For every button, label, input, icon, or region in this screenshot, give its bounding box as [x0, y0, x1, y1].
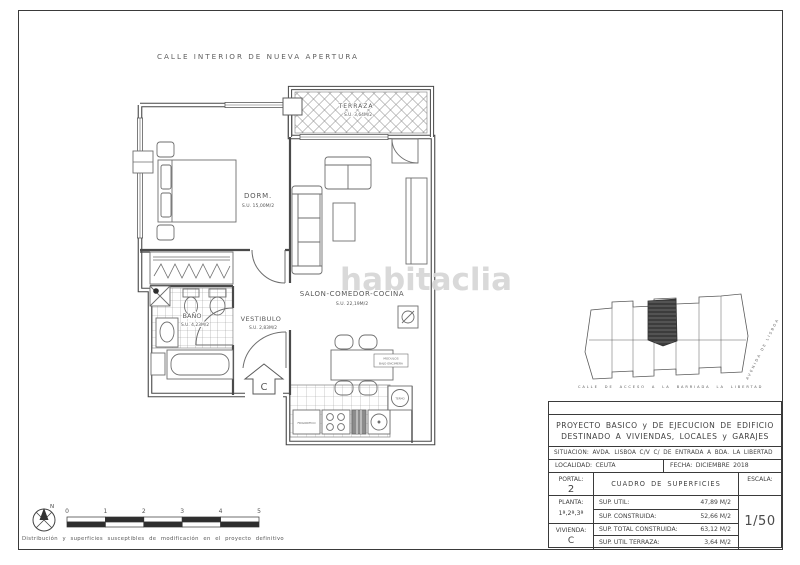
- sup-total-label: SUP. TOTAL CONSTRUIDA:: [599, 524, 678, 535]
- cabinet: [352, 410, 366, 434]
- vivienda-cell: VIVIENDA: C: [549, 524, 594, 549]
- room-label-terraza: TERRAZA: [338, 103, 374, 110]
- sup-construida-row: SUP. CONSTRUIDA: 52,66 M/2: [594, 510, 739, 524]
- north-compass: N: [33, 504, 55, 531]
- portal-value: 2: [549, 484, 593, 496]
- room-area-salon: S.U. 22,19M/2: [336, 301, 368, 307]
- project-title-line1: PROYECTO BASICO y DE EJECUCION DE EDIFIC…: [549, 420, 781, 431]
- vivienda-value: C: [549, 535, 593, 547]
- washbasin: [156, 318, 178, 347]
- terraza-door: [392, 139, 418, 163]
- highlighted-unit: [648, 299, 677, 346]
- localidad-cell: LOCALIDAD: CEUTA: [549, 460, 664, 473]
- project-title: PROYECTO BASICO y DE EJECUCION DE EDIFIC…: [549, 415, 781, 447]
- north-label: N: [50, 504, 54, 510]
- scale-tick: 1: [103, 508, 107, 515]
- nightstand: [157, 225, 174, 240]
- site-street-bottom: CALLE DE ACCESO A LA BARRIADA LA LIBERTA…: [578, 385, 763, 389]
- column-symbol: [398, 306, 418, 328]
- site-plan: CALLE DE ACCESO A LA BARRIADA LA LIBERTA…: [578, 294, 780, 389]
- sup-util-row: SUP. UTIL: 47,89 M/2: [594, 496, 739, 510]
- room-area-terraza: S.U. 3,64M/2: [344, 112, 372, 118]
- entrance-door: [243, 332, 286, 368]
- vivienda-label: VIVIENDA:: [549, 524, 593, 535]
- sup-terraza-label: SUP. UTIL TERRAZA:: [599, 536, 660, 549]
- room-area-bano: S.U. 4,23M/2: [181, 322, 209, 328]
- sup-construida-label: SUP. CONSTRUIDA:: [599, 510, 656, 523]
- room-label-dormitorio: DORM.: [244, 192, 272, 200]
- armchair: [325, 157, 371, 189]
- scale-tick: 2: [142, 508, 146, 515]
- nightstand: [157, 142, 174, 157]
- title-block-empty-row: [549, 402, 781, 415]
- room-area-vestibulo: S.U. 2,83M/2: [249, 325, 277, 331]
- scale-tick: 0: [65, 508, 69, 515]
- escala-value: 1/50: [739, 496, 781, 549]
- sup-util-value: 47,89 M/2: [700, 496, 731, 509]
- vent-shaft: [150, 286, 170, 306]
- escala-label: ESCALA:: [739, 473, 781, 496]
- bedroom-door: [252, 250, 285, 283]
- footer-note: Distribución y superficies susceptibles …: [22, 536, 284, 542]
- project-title-line2: DESTINADO A VIVIENDAS, LOCALES y GARAJES: [549, 431, 781, 442]
- portal-label: PORTAL:: [549, 473, 593, 484]
- wardrobe: [150, 252, 233, 284]
- drawing-sheet: C TERRAZA S.U. 3,64M/2 DORM. S.U. 15,00M…: [0, 0, 800, 565]
- sup-total-row: SUP. TOTAL CONSTRUIDA: 63,12 M/2: [594, 524, 739, 536]
- watermark: habitaclia: [340, 262, 512, 298]
- site-street-right: AVENIDA DE LISBOA: [745, 318, 780, 381]
- portal-cell: PORTAL: 2: [549, 473, 594, 496]
- sup-util-label: SUP. UTIL:: [599, 496, 629, 509]
- counter-note-1: MODULOS: [383, 357, 398, 361]
- counter-note-2: BAJO ENCIMERA: [379, 362, 404, 366]
- scale-tick: 5: [257, 508, 261, 515]
- fridge-note: FRIGORIFICO: [297, 421, 316, 425]
- fecha-cell: FECHA: DICIEMBRE 2018: [664, 460, 781, 473]
- cooktop: [322, 410, 350, 434]
- planta-value: 1ª,2ª,3ª: [549, 507, 593, 518]
- bed: [158, 160, 236, 222]
- pilaster: [283, 98, 302, 115]
- cuadro-title: CUADRO DE SUPERFICIES: [594, 473, 739, 496]
- planta-label: PLANTA:: [549, 496, 593, 507]
- street-label-top: CALLE INTERIOR DE NUEVA APERTURA: [157, 52, 359, 61]
- sup-terraza-value: 3,64 M/2: [704, 536, 731, 549]
- entrance-letter: C: [261, 382, 268, 393]
- scale-tick: 3: [180, 508, 184, 515]
- scale-ticks: 0 1 2 3 4 5: [65, 508, 261, 515]
- room-area-dormitorio: S.U. 15,00M/2: [242, 203, 274, 209]
- scale-bar: 0 1 2 3 4 5: [65, 508, 261, 527]
- sup-total-value: 63,12 M/2: [700, 524, 731, 535]
- situacion-cell: SITUACION: AVDA. LISBOA C/V C/ DE ENTRAD…: [549, 447, 781, 460]
- sup-construida-value: 52,66 M/2: [700, 510, 731, 523]
- bathtub: [151, 350, 233, 379]
- sup-terraza-row: SUP. UTIL TERRAZA: 3,64 M/2: [594, 536, 739, 549]
- room-label-vestibulo: VESTIBULO: [241, 315, 282, 323]
- sofa: [292, 186, 322, 274]
- coffee-table: [333, 203, 355, 241]
- water-heater-note: TERMO: [395, 397, 404, 401]
- room-label-bano: BAÑO: [183, 311, 202, 320]
- scale-tick: 4: [219, 508, 223, 515]
- title-block: PROYECTO BASICO y DE EJECUCION DE EDIFIC…: [548, 401, 782, 548]
- planta-cell: PLANTA: 1ª,2ª,3ª: [549, 496, 594, 524]
- entrance-arrow: C: [245, 364, 283, 394]
- sideboard: [406, 178, 427, 264]
